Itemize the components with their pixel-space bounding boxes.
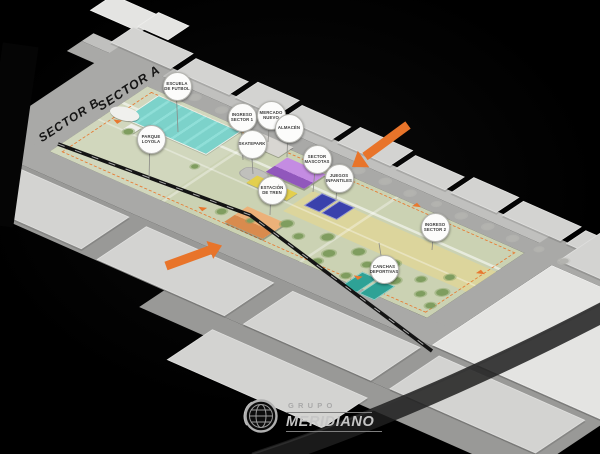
- callout-layer: ESCUELA DE FUTBOLPARQUE LOYOLAINGRESO SE…: [0, 0, 600, 454]
- logo-group-text: GRUPO: [286, 401, 382, 410]
- globe-icon: [241, 396, 281, 436]
- callout-canchas-deportivas: CANCHAS DEPORTIVAS: [370, 255, 399, 284]
- scene: SECTOR A SECTOR B ESCUELA DE FUTBOLPARQU…: [0, 0, 600, 454]
- callout-almacen: ALMACÉN: [275, 114, 304, 143]
- callout-ingreso-sector-2: INGRESO SECTOR 2: [421, 213, 450, 242]
- callout-escuela-de-futbol: ESCUELA DE FUTBOL: [163, 72, 192, 101]
- callout-ingreso-sector-1: INGRESO SECTOR 1: [228, 103, 257, 132]
- grupo-meridiano-logo: GRUPO MERIDIANO: [241, 396, 382, 436]
- callout-estacion-de-tren: ESTACIÓN DE TREN: [258, 176, 287, 205]
- callout-skatepark: SKATEPARK: [238, 130, 267, 159]
- callout-juegos-infantiles: JUEGOS INFANTILES: [325, 164, 354, 193]
- callout-parque-loyola: PARQUE LOYOLA: [137, 125, 166, 154]
- logo-divider-top: [286, 412, 372, 413]
- logo-name-text: MERIDIANO: [286, 414, 382, 430]
- logo-divider-bottom: [286, 431, 382, 432]
